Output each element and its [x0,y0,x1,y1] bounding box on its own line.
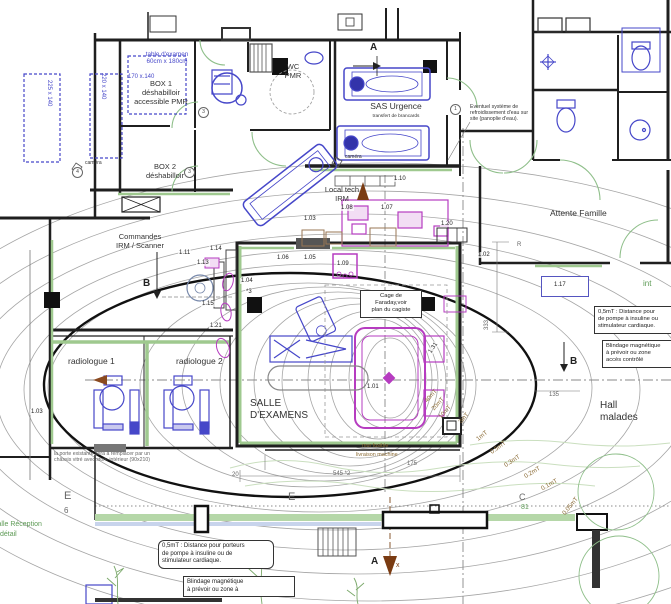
room-wc-pmr: WC PMR [276,63,310,81]
door-number: 3 [198,107,209,118]
eq-107: 1.07 [380,205,394,211]
axis-arrow-icon [93,375,107,385]
marker-81: 81 [521,504,529,512]
note-blindage-right: Blindage magnétique à prévoir ou zone ac… [602,340,671,368]
note-05mt-right: 0,5mT : Distance pour de pompe à insulin… [594,306,671,334]
dim-333: 333 [484,320,491,330]
room-attente: Attente Famille [550,208,607,218]
int-partial: int [643,279,651,288]
marker-B-left: B [143,278,150,290]
dim-545: 545 *2 [333,471,350,478]
field-contour-lines [0,163,671,604]
camera-icons [72,157,342,173]
eq-120: 1.20 [440,221,454,227]
note-eventuel: Eventuel système de refroidissement d'ea… [470,104,534,122]
eq-106: 1.06 [276,255,290,261]
reception-detail: détail [0,531,17,539]
toilet-icon [557,100,575,132]
top-fixtures [150,14,590,40]
floor-plan-canvas: table d'examen 60cm x 180cm 170 x.140 22… [0,0,671,604]
room-box1: BOX 1 déshabilloir accessible PMR [125,80,197,107]
sink-icon [630,120,650,140]
centerlines [85,128,671,604]
eq-109: 1.09 [336,261,350,267]
eq-102: 1.02 [477,252,491,258]
trolley-icon [295,296,336,342]
note-livraison: livraison machine [356,452,398,458]
marker-E-left: E [64,490,71,503]
room-radiologue1: radiologue 1 [68,356,115,366]
eq-104: 1.04 [240,278,254,284]
eq-113: 1.13 [196,260,210,266]
eq-101: 1.01 [366,384,380,390]
note-mur-fusible: mur fusible [362,443,388,449]
room-salle: SALLE D'EXAMENS [250,398,308,422]
eq-115: 1.15 [201,301,215,307]
marker-R: R [517,242,521,249]
dim-220: 220 x 140 [99,73,106,99]
eq-114: 1.14 [209,246,223,252]
eq-103: 1.03 [303,216,317,222]
marker-x-axis: x [396,562,400,570]
marker-A-top: A [370,42,377,54]
eq-star3: *3 [245,289,253,295]
dim-20: 20 [232,472,239,479]
terrain-lines [230,440,670,491]
note-05mt-bottom: 0,5mT : Distance pour porteurs de pompe … [158,540,274,569]
marker-E-mid: E [288,491,295,504]
green-wall-accents [52,170,602,446]
dim-135: 135 [549,392,559,399]
door-number: 1 [450,104,461,115]
marker-6: 6 [64,506,68,515]
room-commandes: Commandes IRM / Scanner [103,233,177,251]
toilet-icon [632,42,650,70]
stretcher-icon [344,68,430,100]
camera-label: caméra [345,155,362,161]
shower-drain-icon [540,54,556,70]
eq-111: 1.11 [178,250,191,256]
room-local-tech: Local tech IRM [318,186,366,204]
shower-stall [622,28,660,72]
workstation-icon [164,376,209,434]
table-examen-label: table d'examen 60cm x 180cm [133,51,201,66]
eq-103b: 1.03 [30,409,44,415]
wheelchair-icon [212,70,246,105]
door-number: 3 [184,167,195,178]
eq-105: 1.05 [303,255,317,261]
camera-label: caméra [85,161,102,167]
marker-A-bottom: A [371,556,378,568]
eq-117: 1.17 [553,282,567,288]
workstation-icon [94,376,139,434]
eq-121: 1.21 [209,323,223,329]
note-blindage-bottom: Blindage magnétique à prévoir ou zone à [183,576,295,597]
note-cage-faraday: Cage de Faraday,voir plan du cagiste [360,290,422,318]
room-sas-urgence: SAS Urgence [352,101,440,111]
door-number: 4 [72,167,83,178]
room-reception: salle Réception [0,521,42,529]
room-hall: Hall malades [600,400,638,424]
marker-B-right: B [570,356,577,368]
room-radiologue2: radiologue 2 [176,356,223,366]
eq-110: 1.10 [393,176,407,182]
marker-C: C [519,492,526,503]
room-sas-sub: transfert de brancards [352,114,440,120]
dim-175: 175 [407,461,417,468]
note-porte: la porte existante sera à remplacer par … [54,451,150,463]
eq-108: 1.08 [340,205,354,211]
dim-225: 225 x 140 [45,80,52,106]
